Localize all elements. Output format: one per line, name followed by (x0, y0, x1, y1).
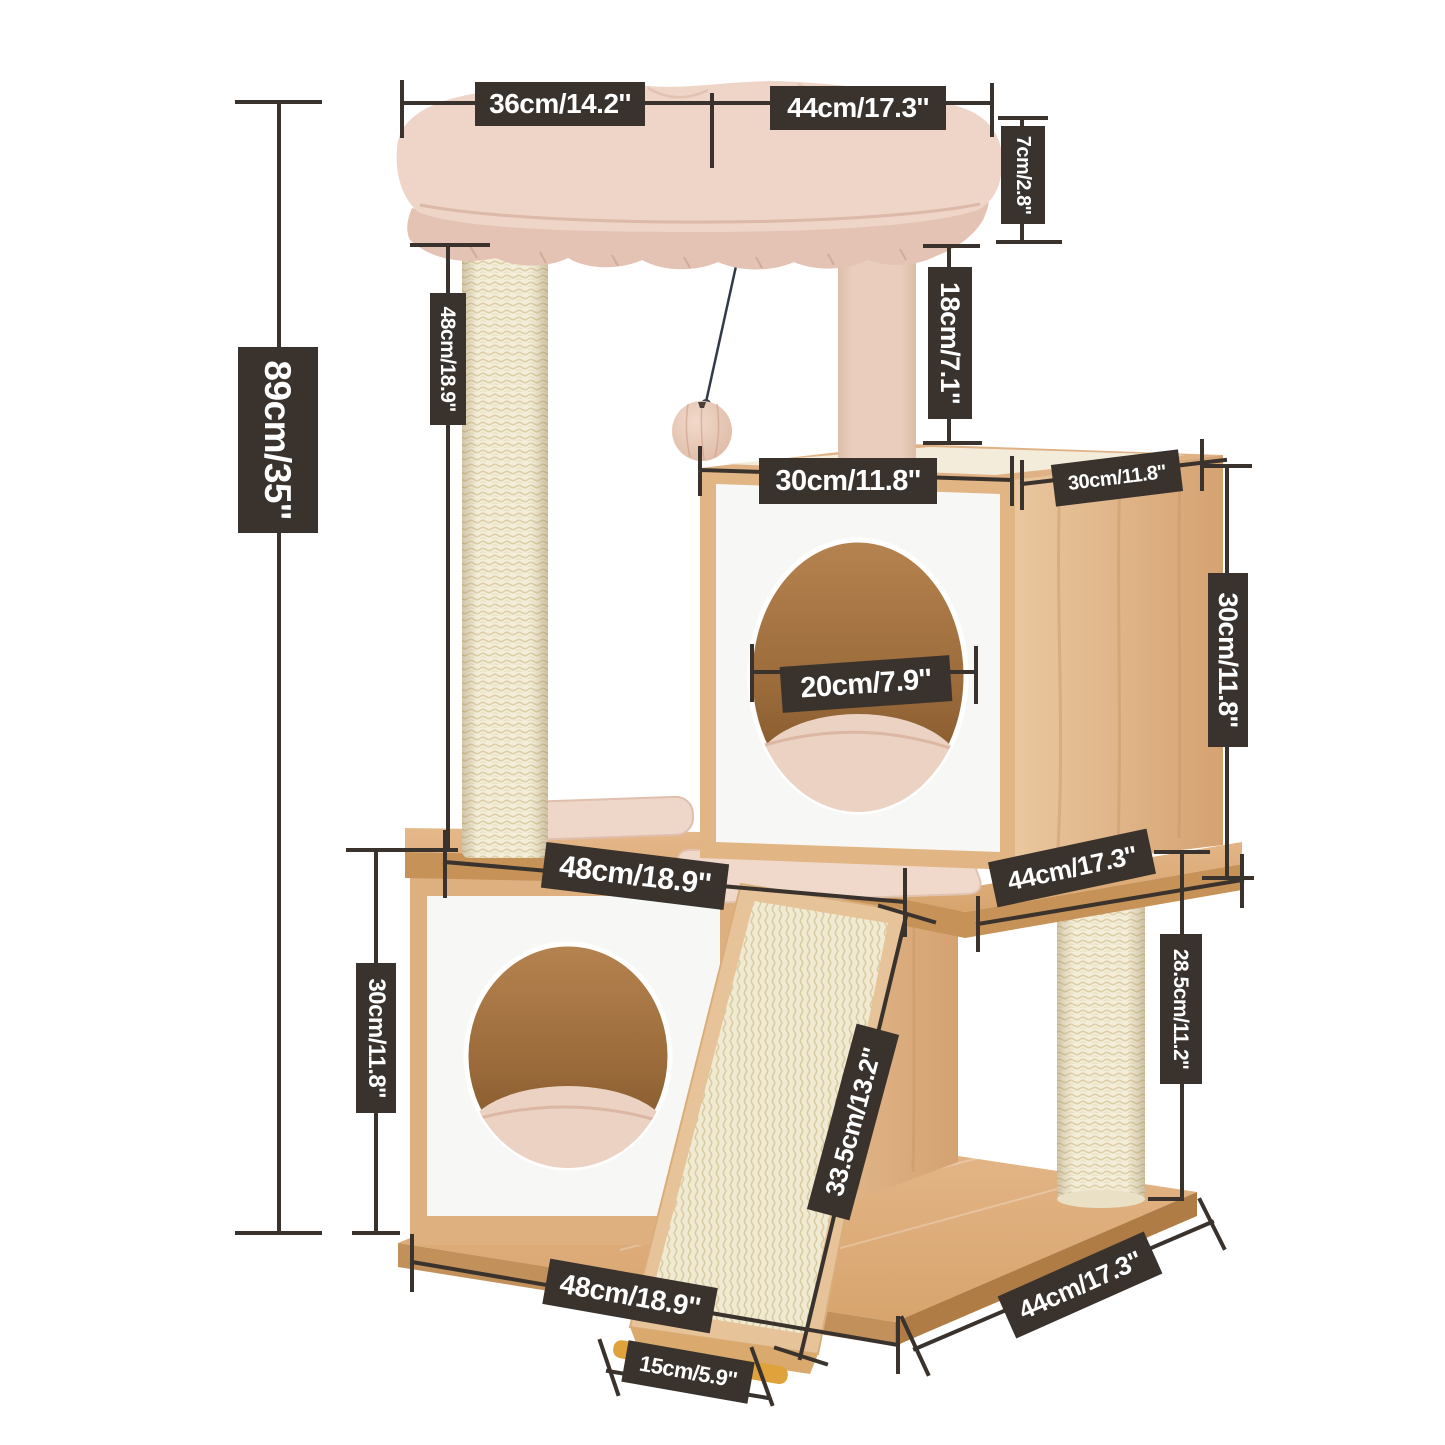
dim-label-post-gap-height: 18cm/7.1'' (928, 267, 972, 419)
dim-label-top-cube-height: 30cm/11.8'' (1208, 573, 1248, 747)
dim-label-total-height: 89cm/35'' (238, 347, 318, 533)
top-cube-condo (700, 444, 1223, 870)
dim-label-top-cube-front-width: 30cm/11.8'' (759, 458, 937, 504)
dim-label-bed-top-left-width: 36cm/14.2'' (475, 82, 645, 126)
dim-label-bed-top-right-width: 44cm/17.3'' (770, 86, 946, 130)
dim-label-lower-cube-height: 30cm/11.8'' (356, 963, 396, 1113)
dim-label-lower-post-height: 28.5cm/11.2'' (1160, 934, 1202, 1084)
top-plush-post (838, 240, 916, 472)
hanging-ball-toy (672, 248, 740, 461)
bottom-scratching-post (1057, 900, 1145, 1208)
dim-label-left-post-height: 48cm/18.9'' (430, 293, 466, 425)
left-scratching-post (462, 240, 548, 858)
product-dimension-diagram: 36cm/14.2'' 44cm/17.3'' 7cm/2.8'' 18cm/7… (0, 0, 1445, 1445)
dim-label-bed-cushion-height: 7cm/2.8'' (1001, 126, 1045, 224)
